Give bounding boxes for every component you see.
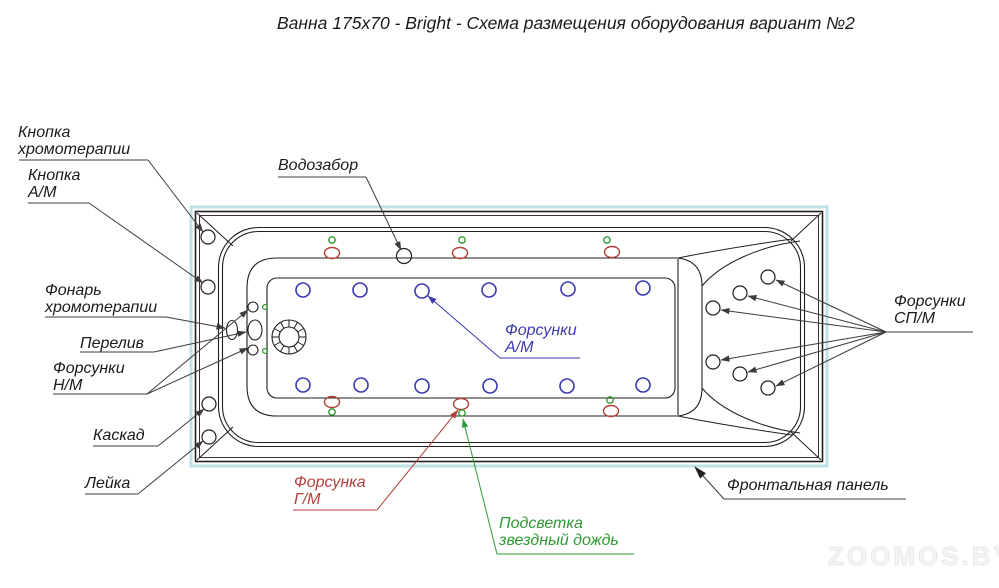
am-jets: [296, 281, 650, 393]
bathtub-scheme-page: Ванна 175х70 - Bright - Схема размещения…: [0, 0, 999, 588]
label-nozzles-am: Форсунки А/М: [505, 323, 577, 356]
nm-jet-dot: [248, 302, 258, 312]
label-backlight-line2: звездный дождь: [499, 533, 619, 550]
label-am-button: Кнопка А/М: [28, 168, 80, 201]
label-water-intake: Водозабор: [278, 158, 358, 175]
headrest-slope-lines: [678, 239, 800, 435]
nm-jet-dot: [248, 345, 258, 355]
label-chromo-button: Кнопка хромотерапии: [18, 125, 130, 158]
label-front-panel: Фронтальная панель: [727, 478, 889, 495]
label-chromo-light-line1: Фонарь: [45, 283, 157, 300]
label-chromo-button-line1: Кнопка: [18, 125, 130, 142]
leader-lines: [89, 160, 886, 554]
label-am-button-line1: Кнопка: [28, 168, 80, 185]
label-chromo-light: Фонарь хромотерапии: [45, 283, 157, 316]
label-nozzles-nm-line2: Н/М: [53, 378, 125, 395]
label-nozzle-gm: Форсунка Г/М: [294, 475, 366, 508]
label-am-button-line2: А/М: [28, 185, 80, 202]
label-backlight-line1: Подсветка: [499, 516, 619, 533]
label-nozzle-gm-line1: Форсунка: [294, 475, 366, 492]
spm-jets: [706, 270, 775, 395]
label-nozzles-spm-line2: СП/М: [894, 311, 966, 328]
bowl-edge-line: [247, 258, 678, 416]
label-nozzles-nm: Форсунки Н/М: [53, 361, 125, 394]
floor-rect: [267, 278, 675, 398]
label-nozzles-am-line1: Форсунки: [505, 323, 577, 340]
overflow-ellipse: [248, 320, 262, 340]
label-underlines: [19, 160, 973, 554]
label-nozzles-am-line2: А/М: [505, 340, 577, 357]
cascade-dot: [202, 397, 216, 411]
drain-icon: [272, 320, 306, 354]
label-chromo-button-line2: хромотерапии: [18, 142, 130, 159]
label-nozzle-gm-line2: Г/М: [294, 492, 366, 509]
watermark: ZOOMOS.BY: [828, 541, 999, 572]
page-title: Ванна 175х70 - Bright - Схема размещения…: [277, 13, 855, 34]
label-backlight: Подсветка звездный дождь: [499, 516, 619, 549]
label-nozzles-spm-line1: Форсунки: [894, 294, 966, 311]
label-overflow: Перелив: [80, 336, 144, 353]
am-button-dot: [201, 280, 215, 294]
chromo-button-dot: [201, 230, 215, 244]
headrest-front-wall: [678, 258, 702, 416]
label-shower-head: Лейка: [85, 476, 130, 493]
label-nozzles-spm: Форсунки СП/М: [894, 294, 966, 327]
water-intake-dot: [397, 249, 412, 264]
label-chromo-light-line2: хромотерапии: [45, 300, 157, 317]
label-cascade: Каскад: [93, 428, 145, 445]
shower-head-dot: [202, 430, 216, 444]
label-nozzles-nm-line1: Форсунки: [53, 361, 125, 378]
